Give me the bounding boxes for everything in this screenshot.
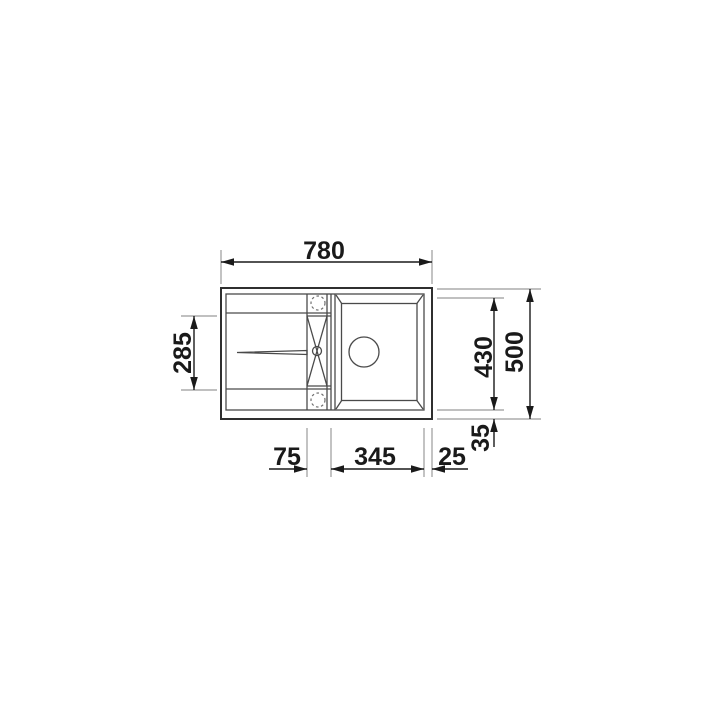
arrowhead-up — [190, 316, 198, 329]
bowl-bevel-top-right — [417, 295, 424, 304]
dim-label-500: 500 — [501, 331, 529, 373]
dim-label-35: 35 — [467, 424, 495, 452]
dim-bowl-length: 430 — [437, 298, 504, 410]
arrowhead-left — [331, 465, 344, 473]
arrowhead-right — [419, 258, 432, 266]
dim-label-25: 25 — [438, 443, 466, 471]
dim-label-345: 345 — [354, 443, 396, 471]
dim-label-285: 285 — [169, 332, 197, 374]
arrowhead-left — [221, 258, 234, 266]
arrowhead-up — [490, 298, 498, 311]
arrowhead-up — [526, 289, 534, 302]
dim-bowl-width: 345 — [331, 443, 424, 473]
dim-drainboard-length: 285 — [169, 316, 217, 390]
technical-drawing-canvas: 780 285 430 500 35 — [0, 0, 720, 720]
bowl-bevel-top-left — [336, 295, 342, 304]
dim-label-780: 780 — [303, 237, 345, 265]
drain-groove — [237, 351, 307, 355]
sink-plan — [221, 288, 432, 419]
dim-bottom-row: 75 345 25 — [269, 428, 468, 477]
arrowhead-down — [526, 406, 534, 419]
dim-bottom-edge: 35 — [467, 419, 498, 452]
drain-hole — [349, 337, 379, 367]
bowl-bevel-bottom-left — [336, 400, 342, 409]
tap-ledge — [307, 294, 331, 410]
main-bowl — [335, 294, 423, 410]
dim-right-edge: 25 — [432, 443, 468, 473]
arrowhead-down — [190, 377, 198, 390]
tap-hole-bottom — [311, 393, 325, 407]
sink-drawing: 780 285 430 500 35 — [0, 0, 720, 720]
dim-overall-width: 780 — [221, 237, 432, 284]
dim-label-75: 75 — [273, 443, 301, 471]
arrowhead-right — [411, 465, 424, 473]
drainboard — [226, 313, 331, 389]
bowl-bevel-bottom-right — [417, 400, 424, 409]
dim-label-430: 430 — [470, 336, 498, 378]
tap-hole-top — [311, 296, 325, 310]
arrowhead-down — [490, 397, 498, 410]
dim-ledge-width: 75 — [269, 443, 307, 473]
